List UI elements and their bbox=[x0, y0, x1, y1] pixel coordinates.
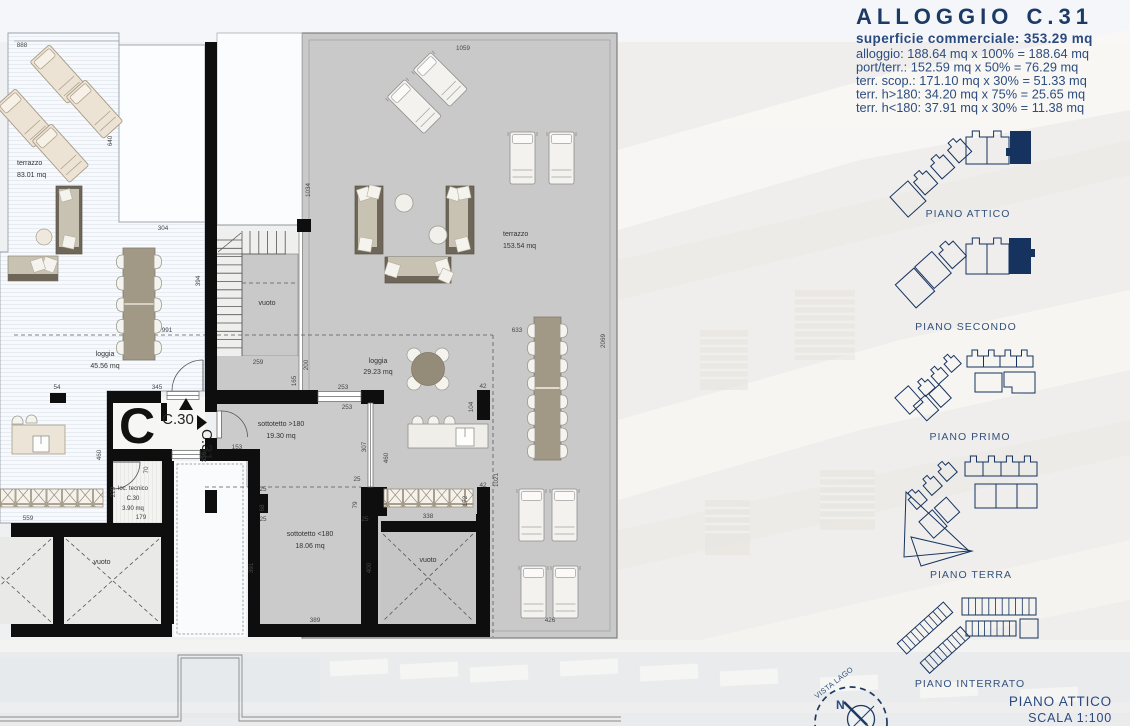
svg-text:superficie commerciale: 353.29: superficie commerciale: 353.29 mq bbox=[856, 31, 1093, 46]
svg-text:vuoto: vuoto bbox=[93, 559, 110, 566]
svg-text:C.31: C.31 bbox=[198, 429, 215, 461]
svg-text:N: N bbox=[836, 698, 845, 712]
svg-text:19.30 mq: 19.30 mq bbox=[266, 433, 295, 440]
svg-text:172: 172 bbox=[462, 495, 469, 506]
svg-text:25: 25 bbox=[361, 516, 369, 523]
svg-text:165: 165 bbox=[291, 375, 298, 386]
svg-text:991: 991 bbox=[162, 327, 173, 334]
svg-text:304: 304 bbox=[158, 225, 169, 232]
svg-text:426: 426 bbox=[545, 617, 556, 624]
svg-text:loggia: loggia bbox=[96, 351, 115, 358]
svg-text:loc. tecnico: loc. tecnico bbox=[118, 486, 149, 492]
svg-text:200: 200 bbox=[303, 359, 310, 370]
svg-text:PIANO PRIMO: PIANO PRIMO bbox=[929, 431, 1010, 443]
svg-text:460: 460 bbox=[383, 452, 390, 463]
svg-text:2069: 2069 bbox=[600, 334, 607, 349]
svg-text:vuoto: vuoto bbox=[258, 300, 275, 307]
svg-text:179: 179 bbox=[136, 514, 147, 521]
svg-text:153.54 mq: 153.54 mq bbox=[503, 243, 536, 250]
svg-text:C.30: C.30 bbox=[162, 411, 194, 428]
svg-text:229: 229 bbox=[110, 486, 117, 497]
svg-text:ALLOGGIO: ALLOGGIO bbox=[856, 4, 1013, 29]
svg-text:307: 307 bbox=[361, 441, 368, 452]
svg-text:460: 460 bbox=[96, 449, 103, 460]
svg-text:253: 253 bbox=[338, 384, 349, 391]
svg-text:1059: 1059 bbox=[456, 45, 471, 52]
svg-text:42: 42 bbox=[479, 383, 487, 390]
svg-text:345: 345 bbox=[152, 384, 163, 391]
svg-text:terr. h<180: 37.91 mq x 30% =: terr. h<180: 37.91 mq x 30% = 11.38 mq bbox=[856, 100, 1084, 115]
svg-text:PIANO ATTICO: PIANO ATTICO bbox=[1009, 694, 1112, 709]
svg-text:1021: 1021 bbox=[493, 473, 500, 488]
svg-text:SCALA 1:100: SCALA 1:100 bbox=[1028, 711, 1112, 725]
svg-text:640: 640 bbox=[107, 135, 114, 146]
svg-text:42: 42 bbox=[479, 482, 487, 489]
svg-text:389: 389 bbox=[310, 617, 321, 624]
svg-text:1034: 1034 bbox=[305, 183, 312, 198]
svg-text:559: 559 bbox=[23, 515, 34, 522]
svg-text:54: 54 bbox=[53, 384, 61, 391]
svg-text:888: 888 bbox=[17, 42, 28, 49]
svg-text:C: C bbox=[119, 398, 155, 454]
svg-text:253: 253 bbox=[342, 404, 353, 411]
svg-text:vuoto: vuoto bbox=[419, 557, 436, 564]
svg-text:633: 633 bbox=[512, 327, 523, 334]
svg-text:25: 25 bbox=[259, 516, 267, 523]
svg-text:70: 70 bbox=[143, 466, 150, 474]
svg-text:loggia: loggia bbox=[369, 358, 388, 365]
svg-text:18.06 mq: 18.06 mq bbox=[295, 543, 324, 550]
svg-text:68: 68 bbox=[259, 504, 266, 512]
svg-text:PIANO ATTICO: PIANO ATTICO bbox=[926, 208, 1011, 220]
svg-text:29.23 mq: 29.23 mq bbox=[363, 369, 392, 376]
svg-text:terrazzo: terrazzo bbox=[503, 231, 528, 238]
svg-text:104: 104 bbox=[468, 401, 475, 412]
svg-text:C.30: C.30 bbox=[127, 496, 140, 502]
svg-text:terrazzo: terrazzo bbox=[17, 160, 42, 167]
svg-text:153: 153 bbox=[232, 444, 243, 451]
svg-text:C.31: C.31 bbox=[1027, 4, 1093, 29]
svg-text:394: 394 bbox=[195, 275, 202, 286]
svg-text:79: 79 bbox=[352, 501, 359, 509]
svg-text:259: 259 bbox=[253, 359, 264, 366]
svg-text:83.01 mq: 83.01 mq bbox=[17, 172, 46, 179]
svg-text:3.90 mq: 3.90 mq bbox=[122, 506, 144, 512]
svg-text:400: 400 bbox=[366, 562, 373, 573]
svg-text:PIANO TERRA: PIANO TERRA bbox=[930, 569, 1012, 581]
svg-text:338: 338 bbox=[423, 513, 434, 520]
svg-text:sottotetto <180: sottotetto <180 bbox=[287, 531, 334, 538]
svg-text:25: 25 bbox=[353, 476, 361, 483]
svg-text:sottotetto >180: sottotetto >180 bbox=[258, 421, 305, 428]
svg-text:25: 25 bbox=[259, 486, 267, 493]
svg-text:PIANO INTERRATO: PIANO INTERRATO bbox=[915, 678, 1025, 690]
svg-text:391: 391 bbox=[248, 562, 255, 573]
svg-text:45.56 mq: 45.56 mq bbox=[90, 363, 119, 370]
svg-text:PIANO SECONDO: PIANO SECONDO bbox=[915, 321, 1017, 333]
